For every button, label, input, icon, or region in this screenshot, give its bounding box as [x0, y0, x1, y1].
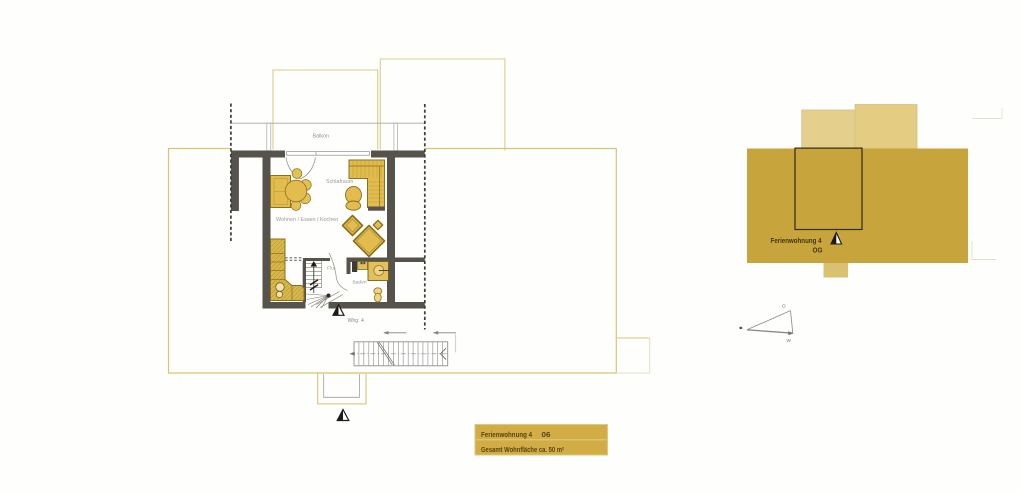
- svg-text:Balkon: Balkon: [313, 134, 329, 140]
- svg-text:Baden: Baden: [353, 279, 367, 285]
- svg-text:Gesamt Wohnfläche ca. 50 m²: Gesamt Wohnfläche ca. 50 m²: [481, 447, 565, 454]
- svg-text:Flur: Flur: [327, 265, 336, 271]
- svg-text:W: W: [787, 338, 792, 343]
- svg-text:Ferienwohnung 4: Ferienwohnung 4: [771, 238, 822, 245]
- svg-text:06: 06: [542, 432, 551, 439]
- svg-text:Schlafraum: Schlafraum: [326, 179, 354, 185]
- svg-text:Ferienwohnung 4: Ferienwohnung 4: [481, 432, 532, 439]
- svg-text:O: O: [782, 304, 786, 309]
- svg-text:Wohnen / Essen / Kochen: Wohnen / Essen / Kochen: [276, 217, 338, 223]
- svg-text:Whg. 4: Whg. 4: [348, 318, 365, 324]
- svg-text:OG: OG: [813, 248, 824, 255]
